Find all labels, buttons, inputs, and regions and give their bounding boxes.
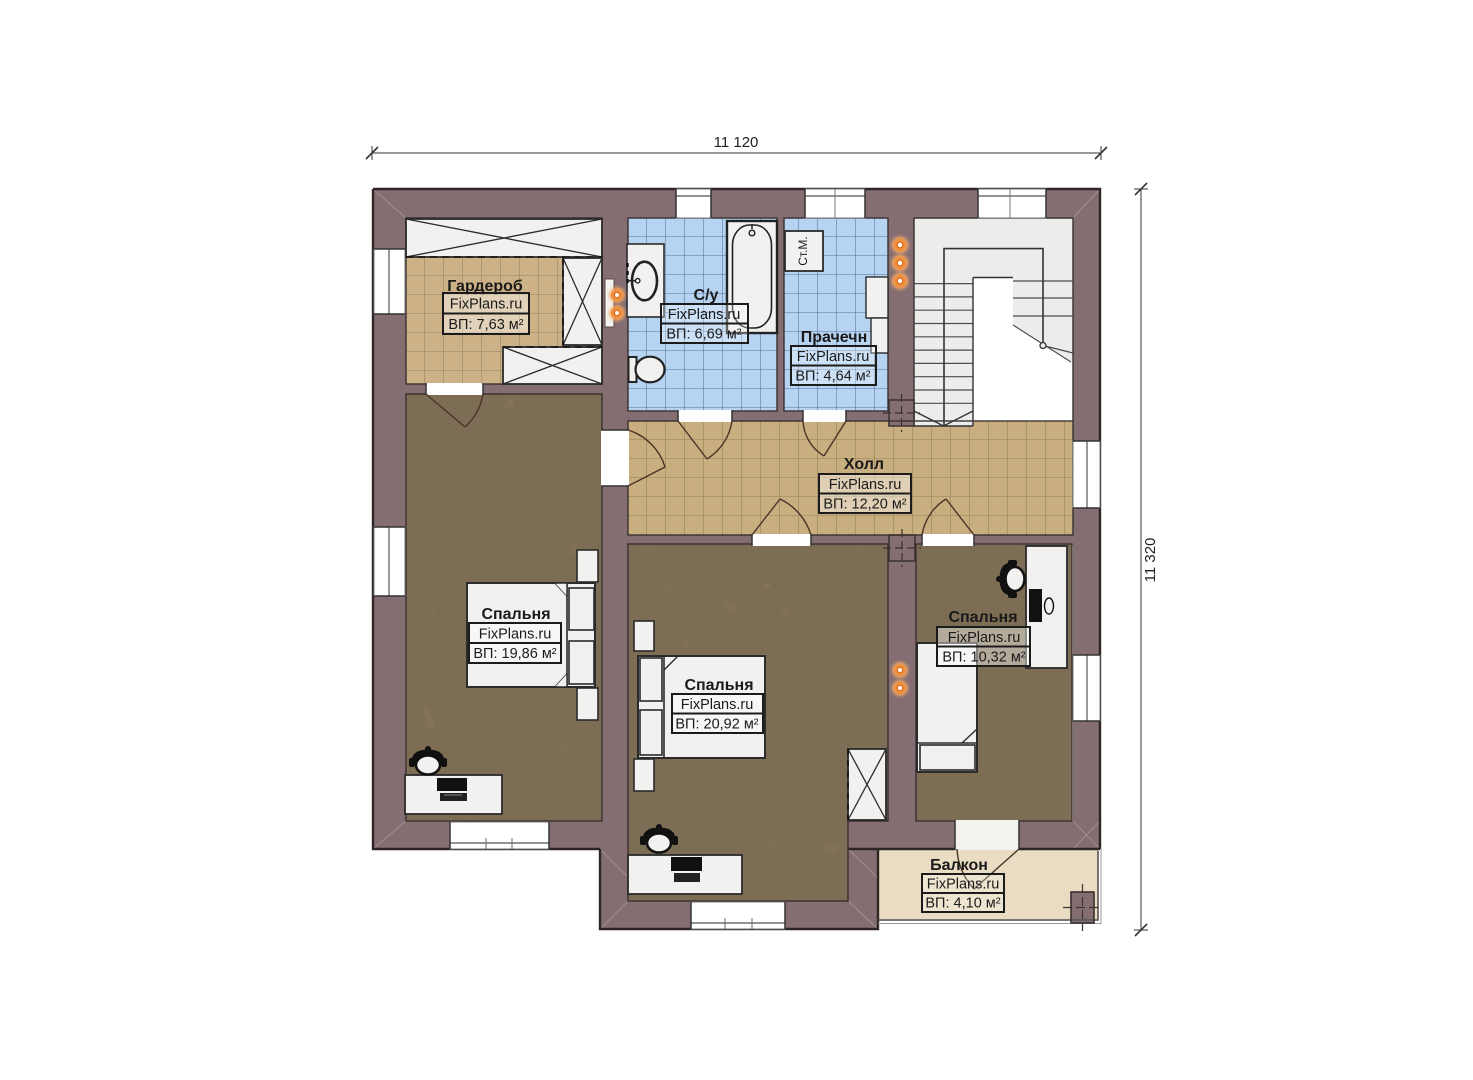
svg-text:FixPlans.ru: FixPlans.ru <box>668 307 741 323</box>
svg-text:FixPlans.ru: FixPlans.ru <box>681 697 754 713</box>
svg-text:FixPlans.ru: FixPlans.ru <box>450 297 523 313</box>
svg-text:FixPlans.ru: FixPlans.ru <box>927 877 1000 893</box>
svg-text:11 320: 11 320 <box>1142 538 1159 583</box>
svg-text:Холл: Холл <box>844 456 884 473</box>
svg-text:Спальня: Спальня <box>684 677 753 694</box>
svg-text:FixPlans.ru: FixPlans.ru <box>479 627 552 643</box>
svg-text:ВП: 12,20 м²: ВП: 12,20 м² <box>823 497 906 513</box>
svg-text:ВП: 4,10 м²: ВП: 4,10 м² <box>925 896 1000 912</box>
svg-text:ВП: 6,69 м²: ВП: 6,69 м² <box>666 327 741 343</box>
svg-text:Балкон: Балкон <box>930 857 988 874</box>
svg-text:FixPlans.ru: FixPlans.ru <box>948 630 1021 646</box>
svg-text:ВП: 4,64 м²: ВП: 4,64 м² <box>795 369 870 385</box>
svg-text:FixPlans.ru: FixPlans.ru <box>797 349 870 365</box>
svg-text:ВП: 20,92 м²: ВП: 20,92 м² <box>675 717 758 733</box>
svg-text:ВП: 10,32 м²: ВП: 10,32 м² <box>942 650 1025 666</box>
svg-text:Спальня: Спальня <box>948 609 1017 626</box>
svg-text:ВП: 19,86 м²: ВП: 19,86 м² <box>473 646 556 662</box>
svg-text:Ст.М.: Ст.М. <box>796 236 810 266</box>
svg-text:ВП: 7,63 м²: ВП: 7,63 м² <box>448 317 523 333</box>
svg-text:Прачечн: Прачечн <box>801 329 868 346</box>
svg-text:С/у: С/у <box>694 287 719 304</box>
svg-text:11 120: 11 120 <box>714 134 759 151</box>
svg-text:FixPlans.ru: FixPlans.ru <box>829 477 902 493</box>
svg-text:Спальня: Спальня <box>481 606 550 623</box>
